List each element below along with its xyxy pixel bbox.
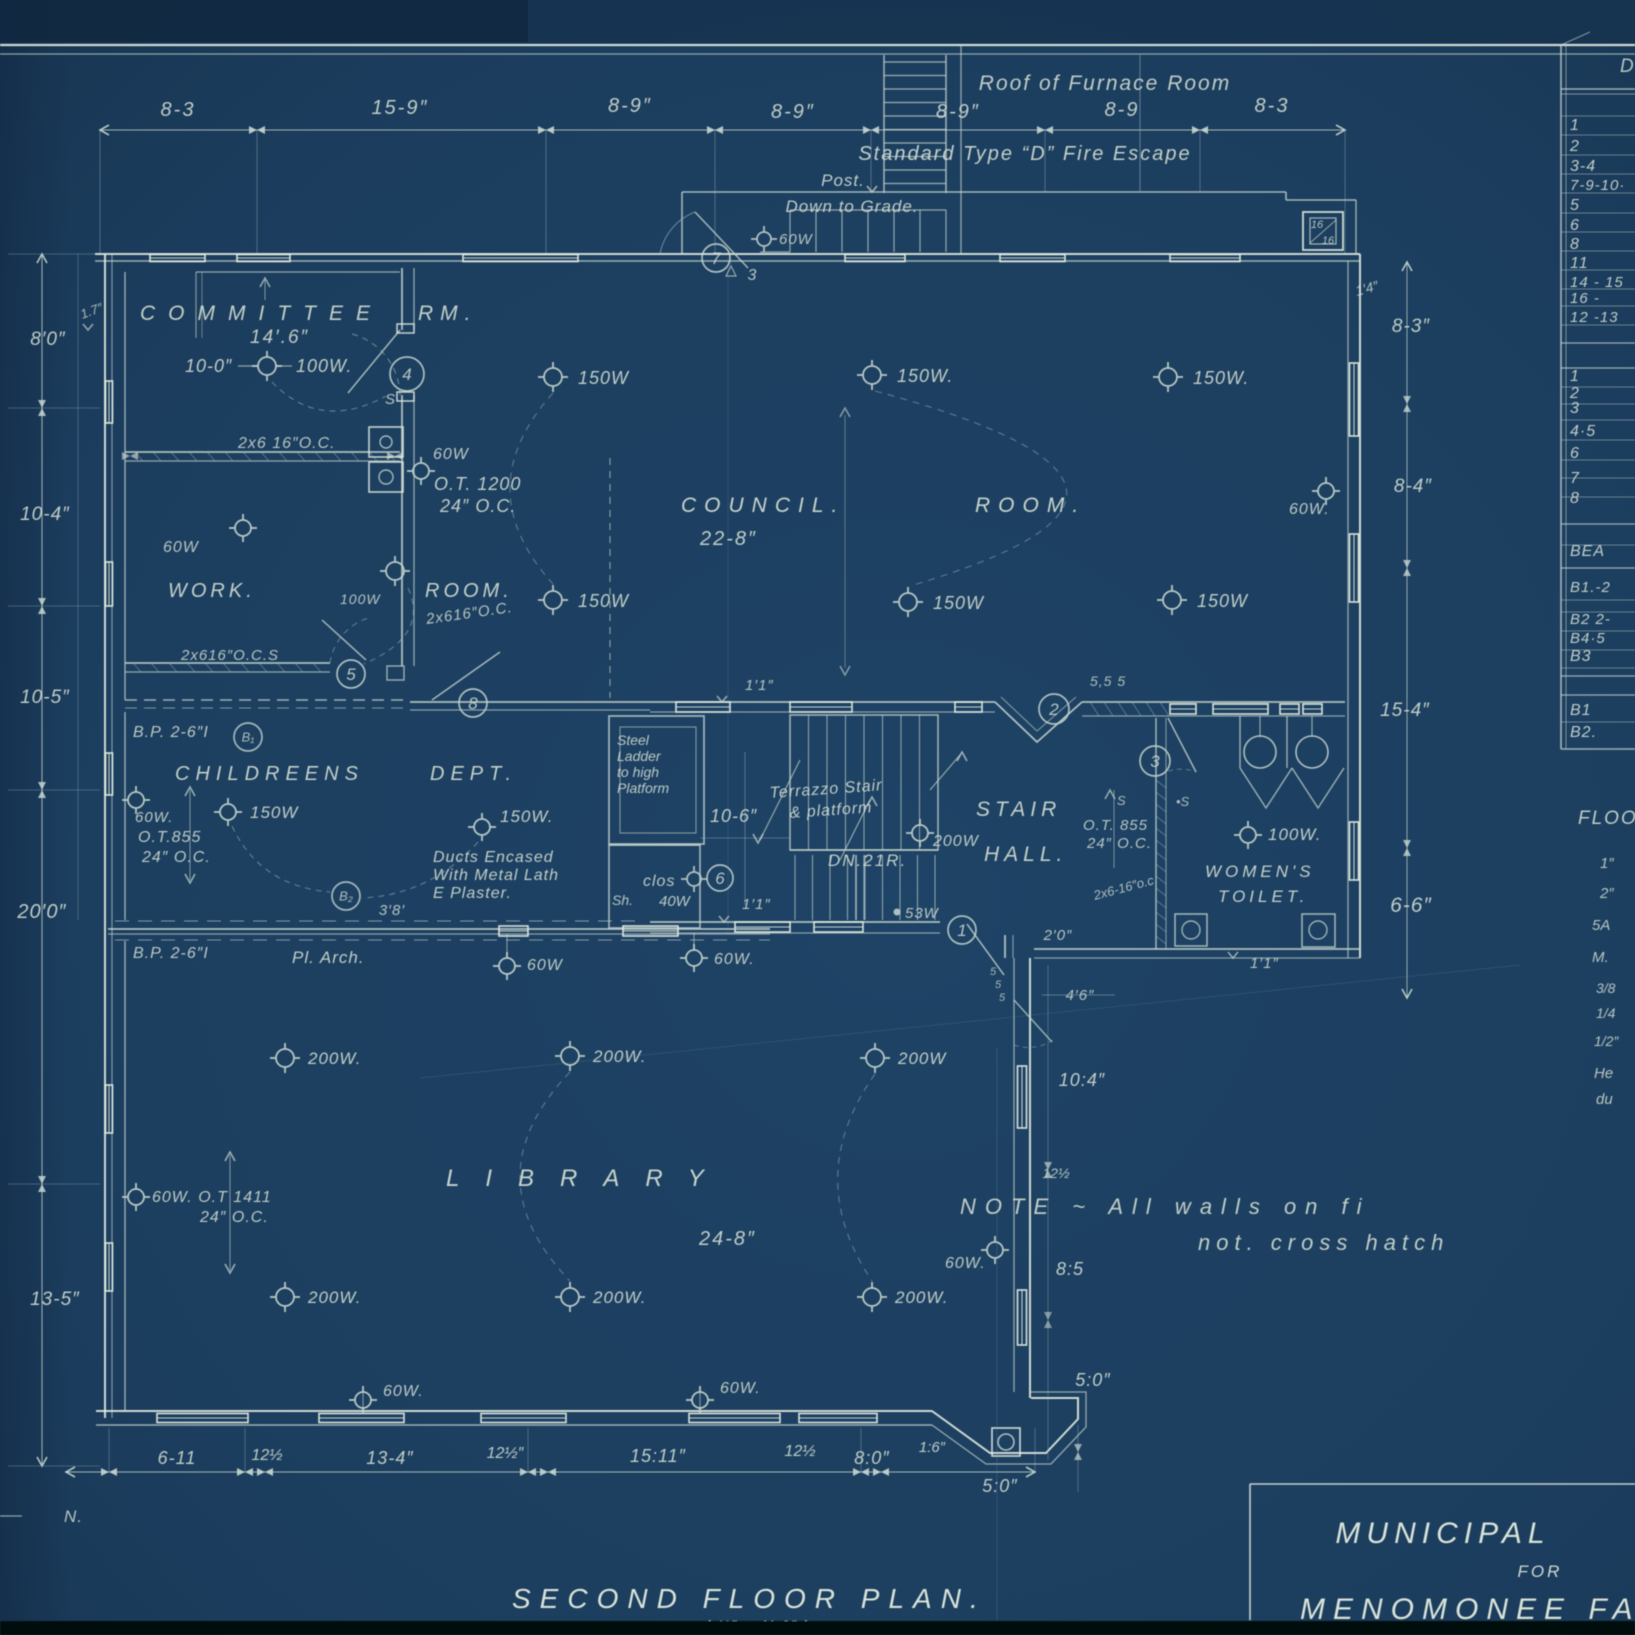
svg-text:10-4″: 10-4″: [20, 504, 70, 525]
svg-text:24-8″: 24-8″: [698, 1228, 756, 1250]
svg-text:5: 5: [1570, 197, 1580, 214]
svg-text:14 - 15: 14 - 15: [1570, 274, 1624, 291]
svg-text:8-3: 8-3: [161, 99, 196, 121]
svg-text:40W: 40W: [659, 893, 692, 910]
svg-text:DN.21R.: DN.21R.: [828, 851, 907, 870]
svg-text:5: 5: [995, 979, 1002, 991]
svg-text:24″ O.C.: 24″ O.C.: [1086, 835, 1152, 852]
svg-text:1: 1: [1570, 368, 1580, 385]
svg-text:8:5: 8:5: [1056, 1259, 1084, 1279]
svg-text:ROOM.: ROOM.: [975, 494, 1086, 517]
svg-text:COUNCIL.: COUNCIL.: [681, 494, 845, 517]
svg-text:2x616″O.C.S: 2x616″O.C.S: [180, 647, 279, 664]
svg-text:20′0″: 20′0″: [16, 901, 66, 923]
svg-text:200W: 200W: [932, 833, 980, 850]
svg-text:Steel: Steel: [617, 732, 650, 748]
svg-text:TOILET.: TOILET.: [1218, 887, 1308, 906]
svg-text:5:0″: 5:0″: [982, 1476, 1017, 1496]
svg-text:B1: B1: [1570, 702, 1592, 719]
svg-text:53W: 53W: [905, 905, 940, 922]
svg-text:12 -13: 12 -13: [1570, 309, 1619, 326]
svg-text:13-5″: 13-5″: [30, 1289, 80, 1310]
svg-text:100W.: 100W.: [296, 356, 352, 376]
svg-text:100W: 100W: [340, 591, 381, 607]
svg-text:1: 1: [957, 921, 966, 940]
svg-text:S: S: [1117, 793, 1126, 808]
svg-text:1: 1: [1570, 117, 1580, 134]
svg-text:16: 16: [1311, 219, 1324, 231]
svg-text:B.P. 2-6″I: B.P. 2-6″I: [133, 724, 209, 741]
svg-text:150W: 150W: [578, 591, 630, 611]
svg-text:10:4″: 10:4″: [1059, 1070, 1105, 1090]
svg-text:2″: 2″: [1599, 885, 1614, 902]
svg-text:60W: 60W: [163, 539, 200, 556]
svg-text:5: 5: [346, 665, 356, 684]
svg-text:7: 7: [711, 249, 721, 268]
svg-text:200W.: 200W.: [307, 1288, 362, 1307]
svg-text:N.: N.: [64, 1507, 83, 1526]
svg-text:3: 3: [1570, 400, 1580, 417]
svg-text:12½: 12½: [251, 1447, 282, 1464]
svg-text:1:6″: 1:6″: [919, 1439, 946, 1456]
svg-text:16 -: 16 -: [1570, 290, 1600, 307]
svg-text:NOTE ~ All walls on fi: NOTE ~ All walls on fi: [960, 1194, 1371, 1219]
svg-text:O.T.855: O.T.855: [138, 829, 201, 846]
svg-text:MUNICIPAL: MUNICIPAL: [1335, 1517, 1550, 1550]
svg-text:150W: 150W: [250, 803, 299, 822]
svg-text:8-3″: 8-3″: [1392, 316, 1430, 337]
svg-text:COMMITTEE: COMMITTEE: [140, 302, 383, 325]
svg-text:8-9″: 8-9″: [771, 101, 815, 123]
svg-text:4: 4: [402, 365, 411, 384]
svg-text:10-6″: 10-6″: [710, 806, 757, 826]
svg-text:Sh.: Sh.: [612, 892, 633, 908]
svg-text:8: 8: [1570, 490, 1580, 507]
svg-text:24″ O.C.: 24″ O.C.: [199, 1209, 269, 1226]
svg-text:200W.: 200W.: [307, 1049, 362, 1068]
svg-text:100W.: 100W.: [1268, 825, 1322, 844]
svg-text:S: S: [385, 391, 395, 408]
svg-text:BEA: BEA: [1570, 543, 1605, 560]
svg-text:B.P. 2-6″I: B.P. 2-6″I: [133, 945, 209, 962]
svg-text:E Plaster.: E Plaster.: [433, 885, 512, 902]
svg-text:15-9″: 15-9″: [371, 97, 428, 119]
svg-text:1/4: 1/4: [1596, 1005, 1616, 1021]
svg-text:8′0″: 8′0″: [30, 329, 66, 350]
svg-text:6: 6: [1570, 217, 1580, 234]
svg-text:B2.: B2.: [1570, 724, 1597, 741]
svg-text:8:0″: 8:0″: [854, 1448, 889, 1468]
svg-text:24″ O.C.: 24″ O.C.: [141, 849, 211, 866]
svg-text:12½: 12½: [784, 1443, 815, 1460]
svg-text:150W.: 150W.: [500, 807, 554, 826]
svg-text:150W: 150W: [1197, 591, 1249, 611]
svg-text:•S: •S: [1176, 794, 1190, 809]
svg-text:60W: 60W: [433, 446, 470, 463]
svg-text:HALL.: HALL.: [984, 843, 1067, 866]
svg-text:8-3: 8-3: [1255, 95, 1290, 117]
svg-text:1″: 1″: [1600, 855, 1614, 872]
svg-text:Roof of Furnace Room: Roof of Furnace Room: [979, 72, 1231, 95]
svg-text:3: 3: [748, 267, 757, 284]
svg-text:B₁: B₁: [242, 730, 255, 745]
svg-text:He: He: [1594, 1065, 1613, 1082]
svg-text:8-4″: 8-4″: [1394, 476, 1432, 497]
svg-text:1′1″: 1′1″: [1250, 955, 1279, 972]
svg-text:With Metal Lath: With Metal Lath: [433, 867, 559, 884]
svg-text:CHILDREENS: CHILDREENS: [175, 763, 364, 785]
svg-text:WOMEN'S: WOMEN'S: [1205, 862, 1315, 881]
svg-text:60W: 60W: [527, 957, 564, 974]
svg-text:B1.-2: B1.-2: [1570, 579, 1611, 596]
svg-text:150W.: 150W.: [897, 366, 953, 386]
svg-text:60W.: 60W.: [714, 951, 755, 968]
svg-text:Ladder: Ladder: [617, 748, 662, 764]
svg-text:1/2″: 1/2″: [1594, 1033, 1619, 1049]
svg-text:16: 16: [1322, 235, 1335, 247]
svg-text:24″ O.C.: 24″ O.C.: [439, 496, 516, 516]
svg-text:du: du: [1596, 1091, 1613, 1108]
svg-text:13-4″: 13-4″: [366, 1448, 413, 1468]
svg-text:Pl. Arch.: Pl. Arch.: [292, 948, 365, 967]
svg-text:150W: 150W: [578, 368, 630, 388]
svg-text:WORK.: WORK.: [168, 580, 256, 602]
svg-text:ROOM.: ROOM.: [425, 580, 513, 602]
svg-text:Standard Type “D” Fire Escape: Standard Type “D” Fire Escape: [858, 143, 1191, 165]
svg-text:2: 2: [1569, 138, 1580, 155]
svg-text:8-9″: 8-9″: [608, 95, 652, 117]
svg-text:clos: clos: [643, 873, 675, 890]
svg-text:4′6″: 4′6″: [1066, 987, 1095, 1004]
svg-text:12½″: 12½″: [487, 1445, 525, 1462]
svg-text:150W.: 150W.: [1193, 368, 1249, 388]
svg-text:O.T. 855: O.T. 855: [1083, 817, 1148, 834]
svg-text:200W.: 200W.: [592, 1047, 647, 1066]
svg-text:3/8: 3/8: [1596, 980, 1616, 996]
svg-text:60W.: 60W.: [383, 1383, 424, 1400]
svg-text:to high: to high: [617, 764, 659, 780]
svg-text:4·5: 4·5: [1570, 423, 1596, 440]
svg-text:2′0″: 2′0″: [1043, 927, 1073, 944]
svg-text:B3: B3: [1570, 648, 1592, 665]
svg-text:LIBRARY: LIBRARY: [446, 1165, 730, 1192]
svg-text:B2 2-: B2 2-: [1570, 611, 1611, 628]
svg-text:not. cross hatch: not. cross hatch: [1198, 1230, 1449, 1255]
svg-text:6-6″: 6-6″: [1390, 894, 1432, 917]
svg-text:FLOO: FLOO: [1578, 808, 1635, 829]
svg-text:D: D: [1620, 56, 1635, 77]
svg-text:6: 6: [1570, 445, 1580, 462]
svg-text:RM.: RM.: [418, 302, 478, 325]
svg-text:M.: M.: [1592, 949, 1609, 966]
svg-text:60W.: 60W.: [1289, 501, 1330, 518]
svg-text:6: 6: [715, 869, 725, 888]
svg-text:2: 2: [1048, 700, 1059, 719]
svg-text:150W: 150W: [933, 593, 985, 613]
svg-text:O.T. 1200: O.T. 1200: [434, 474, 521, 494]
svg-text:60W. O.T 1411: 60W. O.T 1411: [152, 1189, 272, 1206]
svg-text:1′1″: 1′1″: [742, 896, 771, 913]
svg-text:B4·5: B4·5: [1570, 630, 1606, 647]
svg-text:SECOND FLOOR PLAN.: SECOND FLOOR PLAN.: [512, 1583, 987, 1614]
svg-text:7-9-10·: 7-9-10·: [1570, 177, 1625, 194]
svg-text:14′.6″: 14′.6″: [250, 327, 309, 348]
svg-text:8-9″: 8-9″: [936, 101, 980, 123]
svg-text:60W.: 60W.: [720, 1380, 761, 1397]
svg-text:8-9: 8-9: [1105, 99, 1140, 121]
svg-text:3-4: 3-4: [1570, 158, 1596, 175]
svg-text:Post.: Post.: [821, 171, 865, 190]
svg-text:10-0″: 10-0″: [185, 356, 232, 376]
svg-text:Ducts Encased: Ducts Encased: [433, 849, 554, 866]
svg-text:Down to Grade.: Down to Grade.: [785, 197, 918, 216]
svg-text:2x6 16″O.C.: 2x6 16″O.C.: [237, 435, 336, 452]
svg-text:3′8′: 3′8′: [379, 902, 405, 919]
svg-text:3: 3: [1150, 752, 1160, 771]
svg-text:60W: 60W: [779, 231, 814, 248]
svg-text:200W.: 200W.: [894, 1288, 949, 1307]
svg-text:FOR: FOR: [1518, 1562, 1563, 1581]
svg-text:7: 7: [1570, 470, 1580, 487]
svg-text:Platform: Platform: [617, 780, 669, 796]
svg-text:200W: 200W: [897, 1049, 947, 1068]
svg-text:5A: 5A: [1592, 917, 1610, 934]
svg-text:B₂: B₂: [339, 889, 353, 904]
svg-text:DEPT.: DEPT.: [430, 763, 517, 785]
svg-text:10-5″: 10-5″: [20, 687, 70, 708]
svg-text:5: 5: [990, 966, 997, 978]
svg-text:6-11: 6-11: [158, 1448, 197, 1468]
svg-text:1′1″: 1′1″: [745, 677, 774, 694]
svg-text:STAIR: STAIR: [976, 798, 1061, 821]
svg-text:5: 5: [999, 992, 1006, 1004]
svg-text:15-4″: 15-4″: [1380, 700, 1430, 721]
svg-text:15:11″: 15:11″: [630, 1446, 686, 1466]
svg-text:5:0″: 5:0″: [1075, 1370, 1110, 1390]
svg-text:5,5 5: 5,5 5: [1090, 673, 1126, 689]
svg-text:60W.: 60W.: [135, 809, 173, 826]
svg-text:8: 8: [1570, 236, 1580, 253]
svg-text:200W.: 200W.: [592, 1288, 647, 1307]
svg-text:60W.: 60W.: [945, 1255, 986, 1272]
svg-text:11: 11: [1570, 255, 1589, 272]
